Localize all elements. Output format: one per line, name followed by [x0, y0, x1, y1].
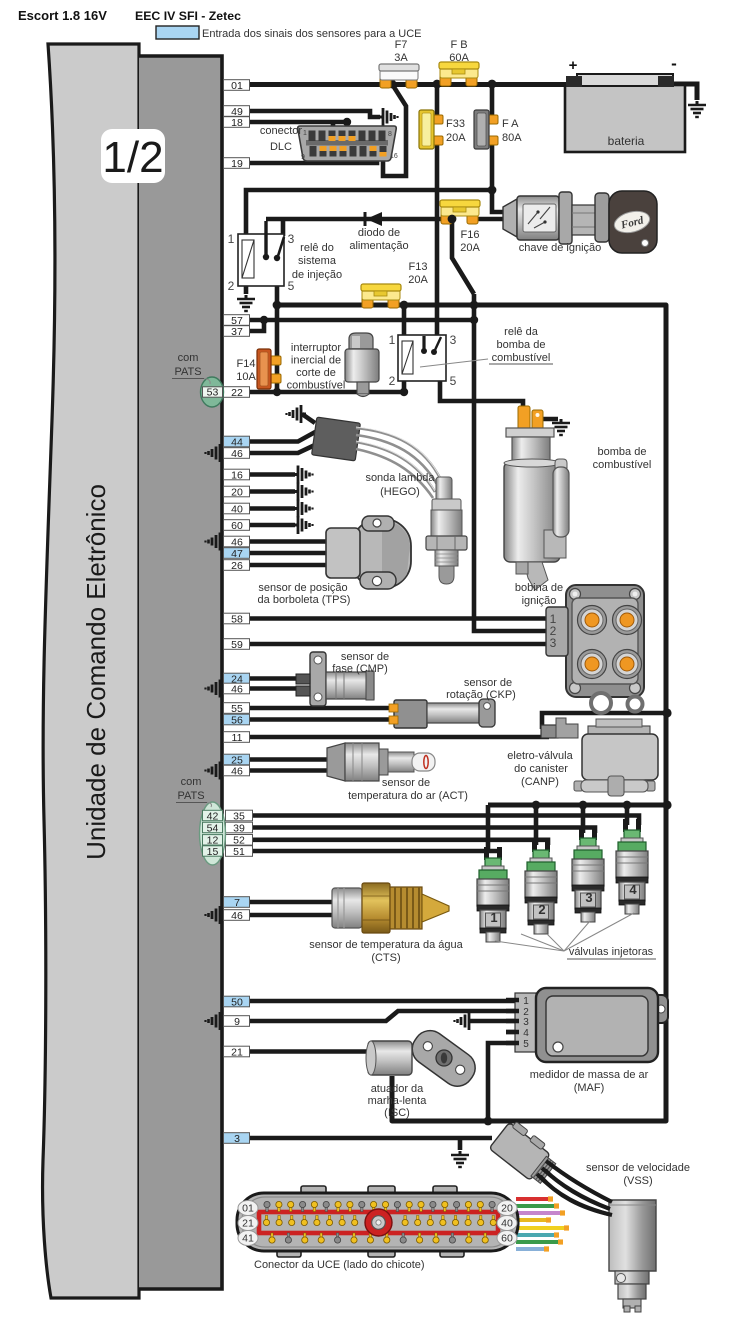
- svg-text:1/2: 1/2: [102, 133, 163, 182]
- svg-text:corte de: corte de: [296, 367, 336, 379]
- svg-text:(CTS): (CTS): [371, 952, 400, 964]
- svg-text:sensor de: sensor de: [464, 677, 512, 689]
- svg-text:bomba de: bomba de: [497, 339, 546, 351]
- svg-text:60: 60: [231, 520, 243, 532]
- svg-text:Escort 1.8 16V: Escort 1.8 16V: [18, 8, 107, 23]
- svg-text:3: 3: [450, 333, 457, 347]
- svg-text:39: 39: [233, 822, 245, 834]
- svg-text:1: 1: [228, 232, 235, 246]
- svg-text:diodo de: diodo de: [358, 227, 400, 239]
- svg-text:1: 1: [490, 910, 497, 925]
- svg-text:chave de ignição: chave de ignição: [519, 242, 602, 254]
- svg-text:1: 1: [523, 996, 529, 1007]
- svg-text:46: 46: [231, 536, 243, 548]
- svg-text:46: 46: [231, 448, 243, 460]
- svg-text:F B: F B: [450, 39, 467, 51]
- svg-text:atuador da: atuador da: [371, 1083, 424, 1095]
- svg-text:46: 46: [231, 683, 243, 695]
- svg-text:relê do: relê do: [300, 242, 334, 254]
- svg-text:5: 5: [288, 279, 295, 293]
- svg-text:16: 16: [390, 153, 398, 160]
- svg-text:combustível: combustível: [492, 352, 551, 364]
- svg-text:11: 11: [232, 732, 243, 744]
- svg-text:-: -: [671, 54, 677, 73]
- svg-text:Unidade de Comando Eletrônico: Unidade de Comando Eletrônico: [81, 484, 111, 860]
- svg-text:alimentação: alimentação: [349, 240, 408, 252]
- svg-text:F13: F13: [409, 261, 428, 273]
- svg-text:35: 35: [233, 810, 245, 822]
- svg-text:bobina de: bobina de: [515, 582, 563, 594]
- svg-text:15: 15: [207, 846, 219, 858]
- svg-text:58: 58: [231, 613, 243, 625]
- svg-text:56: 56: [231, 714, 243, 726]
- svg-text:3: 3: [550, 636, 557, 650]
- svg-text:18: 18: [231, 117, 243, 129]
- svg-text:PATS: PATS: [177, 790, 204, 802]
- svg-text:1: 1: [389, 333, 396, 347]
- svg-text:combustível: combustível: [593, 459, 652, 471]
- svg-text:DLC: DLC: [270, 141, 292, 153]
- svg-text:(HEGO): (HEGO): [380, 486, 420, 498]
- svg-text:10A: 10A: [236, 371, 256, 383]
- svg-text:9: 9: [234, 1016, 240, 1028]
- svg-text:sensor de posição: sensor de posição: [258, 582, 347, 594]
- svg-text:da borboleta (TPS): da borboleta (TPS): [258, 594, 351, 606]
- svg-text:26: 26: [231, 560, 243, 572]
- svg-text:01: 01: [242, 1203, 254, 1215]
- svg-text:4: 4: [523, 1028, 529, 1039]
- svg-text:relê da: relê da: [504, 326, 539, 338]
- svg-text:46: 46: [231, 765, 243, 777]
- svg-text:47: 47: [231, 548, 243, 560]
- svg-text:marha-lenta: marha-lenta: [368, 1095, 428, 1107]
- svg-text:interruptor: interruptor: [291, 342, 341, 354]
- svg-text:22: 22: [231, 387, 243, 399]
- svg-text:(ISC): (ISC): [384, 1107, 410, 1119]
- svg-text:16: 16: [231, 469, 243, 481]
- svg-text:conector: conector: [260, 125, 303, 137]
- svg-text:59: 59: [231, 639, 243, 651]
- svg-text:inercial de: inercial de: [291, 355, 341, 367]
- svg-text:20: 20: [501, 1203, 513, 1215]
- svg-text:sonda lambda: sonda lambda: [365, 472, 435, 484]
- svg-text:40: 40: [231, 503, 243, 515]
- svg-text:F7: F7: [395, 39, 408, 51]
- svg-text:8: 8: [388, 131, 392, 138]
- svg-text:5: 5: [450, 374, 457, 388]
- svg-text:20A: 20A: [460, 242, 480, 254]
- svg-text:1: 1: [303, 130, 307, 137]
- svg-text:55: 55: [231, 703, 243, 715]
- svg-text:9: 9: [301, 154, 305, 161]
- svg-text:20A: 20A: [408, 274, 428, 286]
- svg-text:(CANP): (CANP): [521, 776, 559, 788]
- svg-text:sensor de: sensor de: [341, 651, 389, 663]
- svg-text:EEC IV SFI - Zetec: EEC IV SFI - Zetec: [135, 9, 241, 23]
- svg-text:3: 3: [585, 890, 592, 905]
- svg-text:bomba de: bomba de: [598, 446, 647, 458]
- svg-text:sensor de velocidade: sensor de velocidade: [586, 1162, 690, 1174]
- svg-text:de injeção: de injeção: [292, 269, 342, 281]
- svg-text:44: 44: [231, 436, 243, 448]
- svg-text:19: 19: [231, 158, 243, 170]
- svg-text:2: 2: [389, 374, 396, 388]
- svg-text:3: 3: [523, 1017, 529, 1028]
- svg-text:fase (CMP): fase (CMP): [332, 663, 388, 675]
- svg-text:+: +: [569, 57, 578, 74]
- svg-text:F14: F14: [237, 358, 256, 370]
- svg-text:2: 2: [228, 279, 235, 293]
- svg-text:3A: 3A: [394, 52, 408, 64]
- svg-text:(VSS): (VSS): [623, 1175, 652, 1187]
- svg-text:do canister: do canister: [514, 763, 568, 775]
- svg-text:7: 7: [234, 897, 240, 909]
- svg-text:21: 21: [242, 1218, 254, 1230]
- svg-text:20A: 20A: [446, 132, 466, 144]
- svg-text:Entrada dos sinais dos sensore: Entrada dos sinais dos sensores para a U…: [202, 28, 422, 40]
- svg-text:sensor de temperatura da água: sensor de temperatura da água: [309, 939, 463, 951]
- svg-text:41: 41: [242, 1233, 254, 1245]
- svg-text:combustível: combustível: [287, 380, 346, 392]
- svg-text:medidor de massa de ar: medidor de massa de ar: [530, 1069, 649, 1081]
- svg-text:PATS: PATS: [174, 366, 201, 378]
- svg-text:54: 54: [207, 822, 219, 834]
- svg-text:60A: 60A: [449, 52, 469, 64]
- svg-text:válvulas injetoras: válvulas injetoras: [569, 946, 654, 958]
- svg-text:12: 12: [207, 835, 219, 847]
- svg-text:temperatura do ar (ACT): temperatura do ar (ACT): [348, 790, 468, 802]
- svg-text:3: 3: [234, 1133, 240, 1145]
- svg-text:5: 5: [523, 1039, 529, 1050]
- svg-text:sensor de: sensor de: [382, 777, 430, 789]
- svg-text:(MAF): (MAF): [574, 1082, 605, 1094]
- svg-text:20: 20: [231, 486, 243, 498]
- svg-text:bateria: bateria: [608, 134, 645, 148]
- svg-text:sistema: sistema: [298, 255, 337, 267]
- svg-text:rotação (CKP): rotação (CKP): [446, 689, 516, 701]
- svg-text:80A: 80A: [502, 132, 522, 144]
- svg-text:01: 01: [231, 80, 243, 92]
- svg-text:com: com: [178, 352, 199, 364]
- svg-text:F16: F16: [461, 229, 480, 241]
- svg-text:F A: F A: [502, 118, 519, 130]
- svg-text:60: 60: [501, 1233, 513, 1245]
- svg-text:50: 50: [231, 996, 243, 1008]
- svg-text:F33: F33: [446, 118, 465, 130]
- svg-text:eletro-válvula: eletro-válvula: [507, 750, 573, 762]
- svg-text:21: 21: [231, 1046, 243, 1058]
- svg-text:42: 42: [207, 810, 219, 822]
- svg-text:46: 46: [231, 910, 243, 922]
- svg-text:40: 40: [501, 1218, 513, 1230]
- svg-text:Conector da UCE (lado do chico: Conector da UCE (lado do chicote): [254, 1259, 425, 1271]
- svg-text:2: 2: [538, 902, 545, 917]
- svg-text:ignição: ignição: [522, 595, 557, 607]
- svg-text:51: 51: [233, 846, 245, 858]
- svg-text:53: 53: [207, 387, 219, 399]
- svg-text:4: 4: [629, 882, 637, 897]
- svg-text:37: 37: [231, 326, 243, 338]
- svg-text:3: 3: [288, 232, 295, 246]
- svg-text:com: com: [181, 776, 202, 788]
- svg-text:52: 52: [233, 835, 245, 847]
